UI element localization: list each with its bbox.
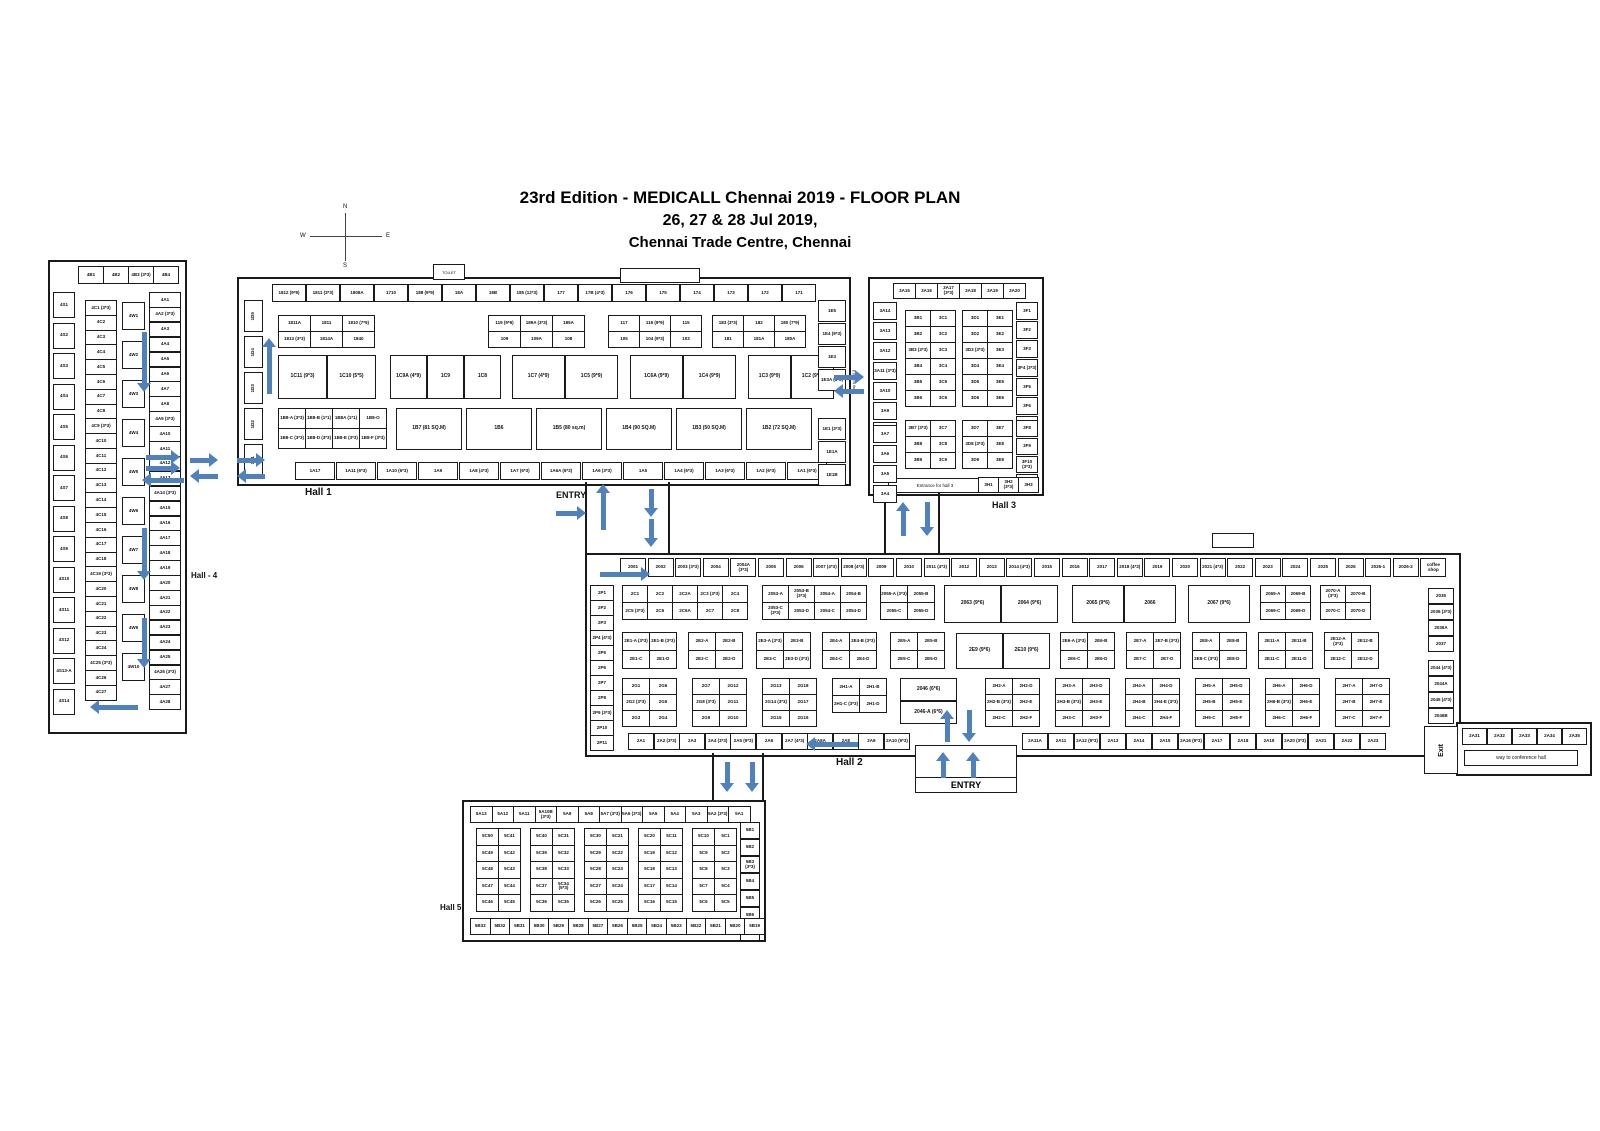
booth: 4A19: [149, 560, 181, 576]
booth: 2A19: [1256, 733, 1282, 750]
booth: 116 (9*9): [639, 315, 671, 332]
booth: 5B31: [509, 918, 530, 935]
down-arrow: [137, 618, 151, 668]
booth: 1E3: [818, 346, 846, 368]
booth: 5A12: [492, 806, 515, 823]
booth: 1A3 (6*3): [705, 462, 745, 480]
booth: 2G7: [692, 678, 720, 695]
booth: 3E2: [987, 326, 1013, 343]
booth: 5C46: [476, 894, 499, 912]
booth: 2C2: [647, 585, 673, 603]
booth: 2067 (9*6): [1188, 585, 1250, 623]
booth: 181: [712, 331, 744, 348]
booth: 2A33: [1512, 728, 1537, 745]
booth: 1E1B: [818, 464, 846, 486]
booth: 2E6-A (3*3): [1060, 632, 1088, 651]
booth: 3D1: [962, 310, 988, 327]
booth: 2A34: [1537, 728, 1562, 745]
booth: 4S8: [53, 506, 75, 532]
booth: 5B32: [490, 918, 511, 935]
booth: 2G1: [622, 678, 650, 695]
booth: 3H2 (3*3): [998, 477, 1019, 493]
booth: 2E2-A: [688, 632, 716, 651]
booth: 3F10 (3*3): [1016, 456, 1038, 473]
booth: 2E7-C: [1126, 650, 1154, 669]
booth: 1C5 (9*9): [565, 355, 618, 399]
booth: 108: [552, 331, 585, 348]
booth: 1E1 (3*3): [818, 418, 846, 440]
booth: 5C29: [584, 845, 607, 863]
booth: 3D8 (3*3): [962, 436, 988, 453]
booth: 1B8-D (3*3): [305, 428, 333, 449]
booth: 2G2 (3*3): [622, 694, 650, 711]
booth: 5C39: [530, 845, 553, 863]
booth: 1C7 (4*9): [512, 355, 565, 399]
booth: 3A18: [959, 283, 982, 299]
booth: 5C10: [692, 828, 715, 846]
booth: 2017: [1089, 558, 1115, 577]
booth: 2G15: [762, 710, 790, 727]
booth: 119 (9*9): [488, 315, 521, 332]
booth: 2A35: [1562, 728, 1587, 745]
booth: 4A25: [149, 650, 181, 666]
booth: 2H7-D: [1362, 678, 1390, 695]
booth: 4A24: [149, 635, 181, 651]
booth: 3F8: [1016, 420, 1038, 437]
booth: 2H4-D: [1152, 678, 1180, 695]
booth: 2E3-D (3*3): [783, 650, 811, 669]
booth: 1B8-B (1*1): [305, 408, 333, 429]
booth: 2E2-C: [688, 650, 716, 669]
booth: 3F9: [1016, 438, 1038, 455]
booth: 5C27: [584, 878, 607, 896]
booth: 1A5: [623, 462, 663, 480]
booth: 3C2: [930, 326, 956, 343]
page-title: 23rd Edition - MEDICALL Chennai 2019 - F…: [430, 188, 1050, 251]
booth: 5C13: [660, 861, 683, 879]
right-arrow: [834, 370, 864, 384]
hall3-corridor-wall-right: [938, 492, 940, 555]
booth: 2H3-D: [1082, 678, 1110, 695]
booth: 1C9: [427, 355, 464, 399]
booth: 3A20: [1003, 283, 1026, 299]
booth: 4C9 (3*3): [85, 418, 117, 434]
booth: 3E4: [987, 358, 1013, 375]
booth: 1840: [342, 331, 375, 348]
booth: 181A: [743, 331, 775, 348]
booth: 2E8-B: [1219, 632, 1247, 651]
compass-west: W: [300, 233, 306, 239]
left-arrow: [142, 473, 184, 487]
booth: 5B1: [740, 822, 760, 839]
booth: 3F3: [1016, 340, 1038, 358]
booth: 2H3-F: [1082, 710, 1110, 727]
booth: 2H3-C: [1055, 710, 1083, 727]
booth: 177: [544, 284, 578, 302]
booth: 4S9: [53, 536, 75, 562]
booth: 1811 (3*3): [306, 284, 340, 302]
right-arrow: [190, 453, 218, 467]
booth: 4S3: [53, 353, 75, 379]
booth: 2C3 (3*3): [697, 585, 723, 603]
booth: 2037: [1428, 636, 1454, 652]
booth: 3C5: [930, 374, 956, 391]
booth: 2A1: [628, 733, 654, 750]
booth: 2054-A: [814, 585, 841, 603]
booth: 2E7-D: [1153, 650, 1181, 669]
booth: 2E5-A: [890, 632, 918, 651]
booth: 2P6: [590, 660, 614, 676]
booth: 5A9: [556, 806, 579, 823]
booth: 5C22: [606, 845, 629, 863]
right-arrow: [237, 453, 265, 467]
booth: 1C4 (9*9): [683, 355, 736, 399]
booth: 2026-1: [1365, 558, 1391, 577]
booth: 4C17: [85, 537, 117, 553]
booth: 5C15: [660, 894, 683, 912]
booth: 5C3: [714, 861, 737, 879]
booth: 2A14: [1126, 733, 1152, 750]
booth: 5C43: [498, 861, 521, 879]
booth: 2G14 (3*3): [762, 694, 790, 711]
booth: 2E2-B: [715, 632, 743, 651]
booth: 2066: [1124, 585, 1176, 623]
booth: 105: [608, 331, 640, 348]
booth: 3A4: [873, 485, 897, 503]
booth: 3B8: [905, 436, 931, 453]
booth: 2A15: [1152, 733, 1178, 750]
booth: 4C18: [85, 552, 117, 568]
booth: 2P9 (3*3): [590, 705, 614, 721]
entry-corridor-wall-right: [668, 482, 670, 555]
hall2-top-service-box: [1212, 533, 1254, 548]
booth: 3F6: [1016, 397, 1038, 415]
booth: 2004A (3*3): [730, 558, 756, 577]
down-arrow: [644, 489, 658, 517]
booth: 5C44: [498, 878, 521, 896]
title-line2: 26, 27 & 28 Jul 2019,: [430, 212, 1050, 230]
booth: 4A4: [149, 337, 181, 353]
up-arrow: [596, 484, 610, 530]
booth: 2C5 (3*3): [622, 602, 648, 620]
booth: 2C8: [722, 602, 748, 620]
hall1-label: Hall 1: [305, 487, 332, 498]
booth: 4C25 (3*3): [85, 655, 117, 671]
booth: 1811: [310, 315, 343, 332]
booth: 3F1: [1016, 302, 1038, 320]
booth: 2A5 (9*3): [730, 733, 756, 750]
booth: 3E7: [987, 420, 1013, 437]
booth: 2G17: [789, 694, 817, 711]
booth: 1814A: [310, 331, 343, 348]
booth: 1A2 (6*3): [746, 462, 786, 480]
booth: 4S5: [53, 414, 75, 440]
booth: 2H1-A: [832, 678, 860, 696]
booth: 5A10B (3*3): [535, 806, 558, 823]
booth: 2E11-C: [1258, 650, 1286, 669]
booth: 3F4 (3*3): [1016, 359, 1038, 377]
booth: 2019: [1144, 558, 1170, 577]
booth: 1A8 (4*3): [459, 462, 499, 480]
title-line1: 23rd Edition - MEDICALL Chennai 2019 - F…: [430, 188, 1050, 208]
booth: 2G13: [762, 678, 790, 695]
booth: 2005: [758, 558, 784, 577]
booth: 5B25: [627, 918, 648, 935]
booth: 4W4: [122, 419, 145, 447]
booth: 2P8: [590, 690, 614, 706]
down-arrow: [720, 762, 734, 792]
booth: 2C1: [622, 585, 648, 603]
booth: 3D3 (3*3): [962, 342, 988, 359]
booth: 2070-B: [1345, 585, 1371, 603]
booth: 4S1: [53, 292, 75, 318]
booth: 1A4 (6*3): [664, 462, 704, 480]
booth: 2A16 (9*3): [1178, 733, 1204, 750]
booth: 3D2: [962, 326, 988, 343]
booth: 5B23: [666, 918, 687, 935]
booth: 2E5-D: [917, 650, 945, 669]
floor-plan: 23rd Edition - MEDICALL Chennai 2019 - F…: [0, 0, 1600, 1131]
booth: 2C4: [722, 585, 748, 603]
booth: 2C7: [697, 602, 723, 620]
booth: 1812 (9*9): [272, 284, 306, 302]
booth: 18A: [442, 284, 476, 302]
booth: 1A6 (3*3): [582, 462, 622, 480]
booth: 5C26: [584, 894, 607, 912]
booth: 2H6-B (3*3): [1265, 694, 1293, 711]
booth: 5A5: [642, 806, 665, 823]
booth: 3A12: [873, 342, 897, 360]
hall1-top-service-box: [620, 268, 700, 283]
booth: 3C3: [930, 342, 956, 359]
booth: 2A7 (4*3): [782, 733, 808, 750]
booth: 2E1-B (3*3): [649, 632, 677, 651]
booth: 4A20: [149, 575, 181, 591]
right-arrow: [556, 506, 586, 520]
booth: 2A10 (9*3): [884, 733, 910, 750]
booth: 5C28: [584, 861, 607, 879]
booth: 5C21: [606, 828, 629, 846]
booth: 117: [608, 315, 640, 332]
booth: 4A14 (3*3): [149, 486, 181, 502]
booth: 2E10 (9*6): [1003, 633, 1050, 669]
booth: 5C24: [606, 878, 629, 896]
booth: 2020: [1172, 558, 1198, 577]
booth: 2A23: [1360, 733, 1386, 750]
booth: 2025: [1310, 558, 1336, 577]
down-arrow: [137, 332, 151, 392]
booth: 4C24: [85, 640, 117, 656]
booth: 2E8-A: [1192, 632, 1220, 651]
booth: 3A9: [873, 402, 897, 420]
booth: 5C11: [660, 828, 683, 846]
booth: 5C17: [638, 878, 661, 896]
booth: 1C10 (5*5): [327, 355, 376, 399]
booth: 2046 (6*6): [900, 678, 957, 701]
booth: 2H6-C: [1265, 710, 1293, 727]
booth: 4W1: [122, 302, 145, 330]
booth: 1808A: [340, 284, 374, 302]
booth: 2A20 (3*3): [1282, 733, 1308, 750]
booth: 2H3-E: [1082, 694, 1110, 711]
booth: 2H5-E: [1222, 694, 1250, 711]
booth: 2H5-D: [1222, 678, 1250, 695]
booth: 4C12: [85, 463, 117, 479]
booth: 4C3: [85, 330, 117, 346]
booth: 17B (4*3): [578, 284, 612, 302]
booth: 4C6: [85, 374, 117, 390]
booth: 2009: [868, 558, 894, 577]
booth: 2004: [703, 558, 729, 577]
booth: 4A22: [149, 605, 181, 621]
booth: 2G12: [719, 678, 747, 695]
booth: 4A8: [149, 396, 181, 412]
booth: 2H6-F: [1292, 710, 1320, 727]
booth: 4A5: [149, 352, 181, 368]
booth: 2E1-D: [649, 650, 677, 669]
booth: 3A10: [873, 382, 897, 400]
booth: 1B8-E (3*3): [332, 428, 360, 449]
booth: 2A32: [1487, 728, 1512, 745]
booth: 2055-A (3*3): [880, 585, 908, 603]
booth: 4C2: [85, 315, 117, 331]
booth: 4B1: [78, 266, 104, 284]
compass-vertical-line: [345, 213, 346, 261]
booth: 2P10: [590, 720, 614, 736]
booth: 4A23: [149, 620, 181, 636]
booth: 4A10: [149, 426, 181, 442]
booth: 2007 (4*3): [813, 558, 839, 577]
booth: 4A21: [149, 590, 181, 606]
booth: 5C48: [476, 861, 499, 879]
booth: 5C19: [638, 845, 661, 863]
toilet-box: TOILET: [433, 264, 465, 280]
booth: 3H3: [1018, 477, 1039, 493]
booth: 3E5: [987, 374, 1013, 391]
booth: 5C38: [530, 861, 553, 879]
booth: 3C4: [930, 358, 956, 375]
left-arrow: [90, 700, 138, 714]
booth: 3D4: [962, 358, 988, 375]
booth: 2E6-D: [1087, 650, 1115, 669]
booth: 4A6: [149, 367, 181, 383]
booth: 2011 (4*3): [924, 558, 950, 577]
booth: 2H2-B (3*3): [985, 694, 1013, 711]
booth: 2E1-C: [622, 650, 650, 669]
booth: 2016: [1062, 558, 1088, 577]
booth: 1C8: [464, 355, 501, 399]
booth: 2A12 (9*3): [1074, 733, 1100, 750]
booth: 4S7: [53, 475, 75, 501]
booth: 1A17: [295, 462, 335, 480]
booth: 4C27: [85, 685, 117, 701]
booth: 188 (9*9): [408, 284, 442, 302]
booth: 1B5 (80 sq.m): [536, 408, 602, 450]
booth: 1E4 (9*3): [818, 323, 846, 345]
booth: 3C6: [930, 390, 956, 407]
booth: 5B30: [529, 918, 550, 935]
booth: 4C19 (3*3): [85, 566, 117, 582]
booth: 2E7-B (3*3): [1153, 632, 1181, 651]
booth: 2070-D: [1345, 602, 1371, 620]
booth: 2H7-A: [1335, 678, 1363, 695]
booth: 2053-B (3*3): [788, 585, 815, 603]
booth: 2C2A: [672, 585, 698, 603]
booth: 2002: [648, 558, 674, 577]
booth: 5A1: [728, 806, 751, 823]
booth: 4A16: [149, 516, 181, 532]
booth: 2E6-B: [1087, 632, 1115, 651]
booth: 4C5: [85, 359, 117, 375]
booth: 1C9A (4*9): [390, 355, 427, 399]
booth: 4A28: [149, 694, 181, 710]
booth: 2H5-F: [1222, 710, 1250, 727]
booth: 2E11-D: [1285, 650, 1313, 669]
booth: 2023: [1255, 558, 1281, 577]
booth: 3E6: [987, 390, 1013, 407]
booth: 2054-C: [814, 602, 841, 620]
booth: 5B29: [548, 918, 569, 935]
booth: 3E9: [987, 452, 1013, 469]
booth: 2E9 (9*6): [956, 633, 1003, 669]
booth: 2E4-B (3*3): [849, 632, 877, 651]
booth: 5C49: [476, 845, 499, 863]
booth: 4S10: [53, 567, 75, 593]
booth: 3H1: [978, 477, 999, 493]
booth: 3C1: [930, 310, 956, 327]
booth: 2026-2: [1393, 558, 1419, 577]
booth: 2H1-C (3*3): [832, 695, 860, 713]
booth: 1B7 (81 SQ.M): [396, 408, 462, 450]
booth: 5B19: [744, 918, 765, 935]
booth: 2H2-E: [1012, 694, 1040, 711]
booth: 2H7-C: [1335, 710, 1363, 727]
booth: 4A1: [149, 292, 181, 308]
hall3-label: Hall 3: [992, 500, 1016, 510]
booth: 2H5-A: [1195, 678, 1223, 695]
booth: 5B21: [705, 918, 726, 935]
booth: 5C8: [692, 861, 715, 879]
booth: 3D6: [962, 390, 988, 407]
booth: 2H4-A: [1125, 678, 1153, 695]
booth: 2014 (4*3): [1006, 558, 1032, 577]
booth: 2E5-C: [890, 650, 918, 669]
booth: 1A9: [418, 462, 458, 480]
booth: 2G8 (3*3): [692, 694, 720, 711]
booth: 2055-B: [907, 585, 935, 603]
booth: 2H6-E: [1292, 694, 1320, 711]
booth: 2E11-A: [1258, 632, 1286, 651]
booth: 5A6 (3*3): [621, 806, 644, 823]
booth: 109A: [520, 331, 553, 348]
booth: 2H4-E (3*3): [1152, 694, 1180, 711]
booth: 5B27: [588, 918, 609, 935]
left-arrow: [806, 737, 858, 751]
booth: 2H1-D: [859, 695, 887, 713]
booth: 2G9: [692, 710, 720, 727]
booth: 4C4: [85, 344, 117, 360]
hall2-label: Hall 2: [836, 757, 863, 768]
booth: 5C45: [498, 894, 521, 912]
booth: 5A4: [664, 806, 687, 823]
booth: 1B2 (72 SQ.M): [746, 408, 812, 450]
booth: 5B28: [568, 918, 589, 935]
booth: 2H3-B (3*3): [1055, 694, 1083, 711]
booth: 4S4: [53, 384, 75, 410]
booth: 3C9: [930, 452, 956, 469]
booth: 2053-D: [788, 602, 815, 620]
booth: 180 (7*9): [774, 315, 806, 332]
